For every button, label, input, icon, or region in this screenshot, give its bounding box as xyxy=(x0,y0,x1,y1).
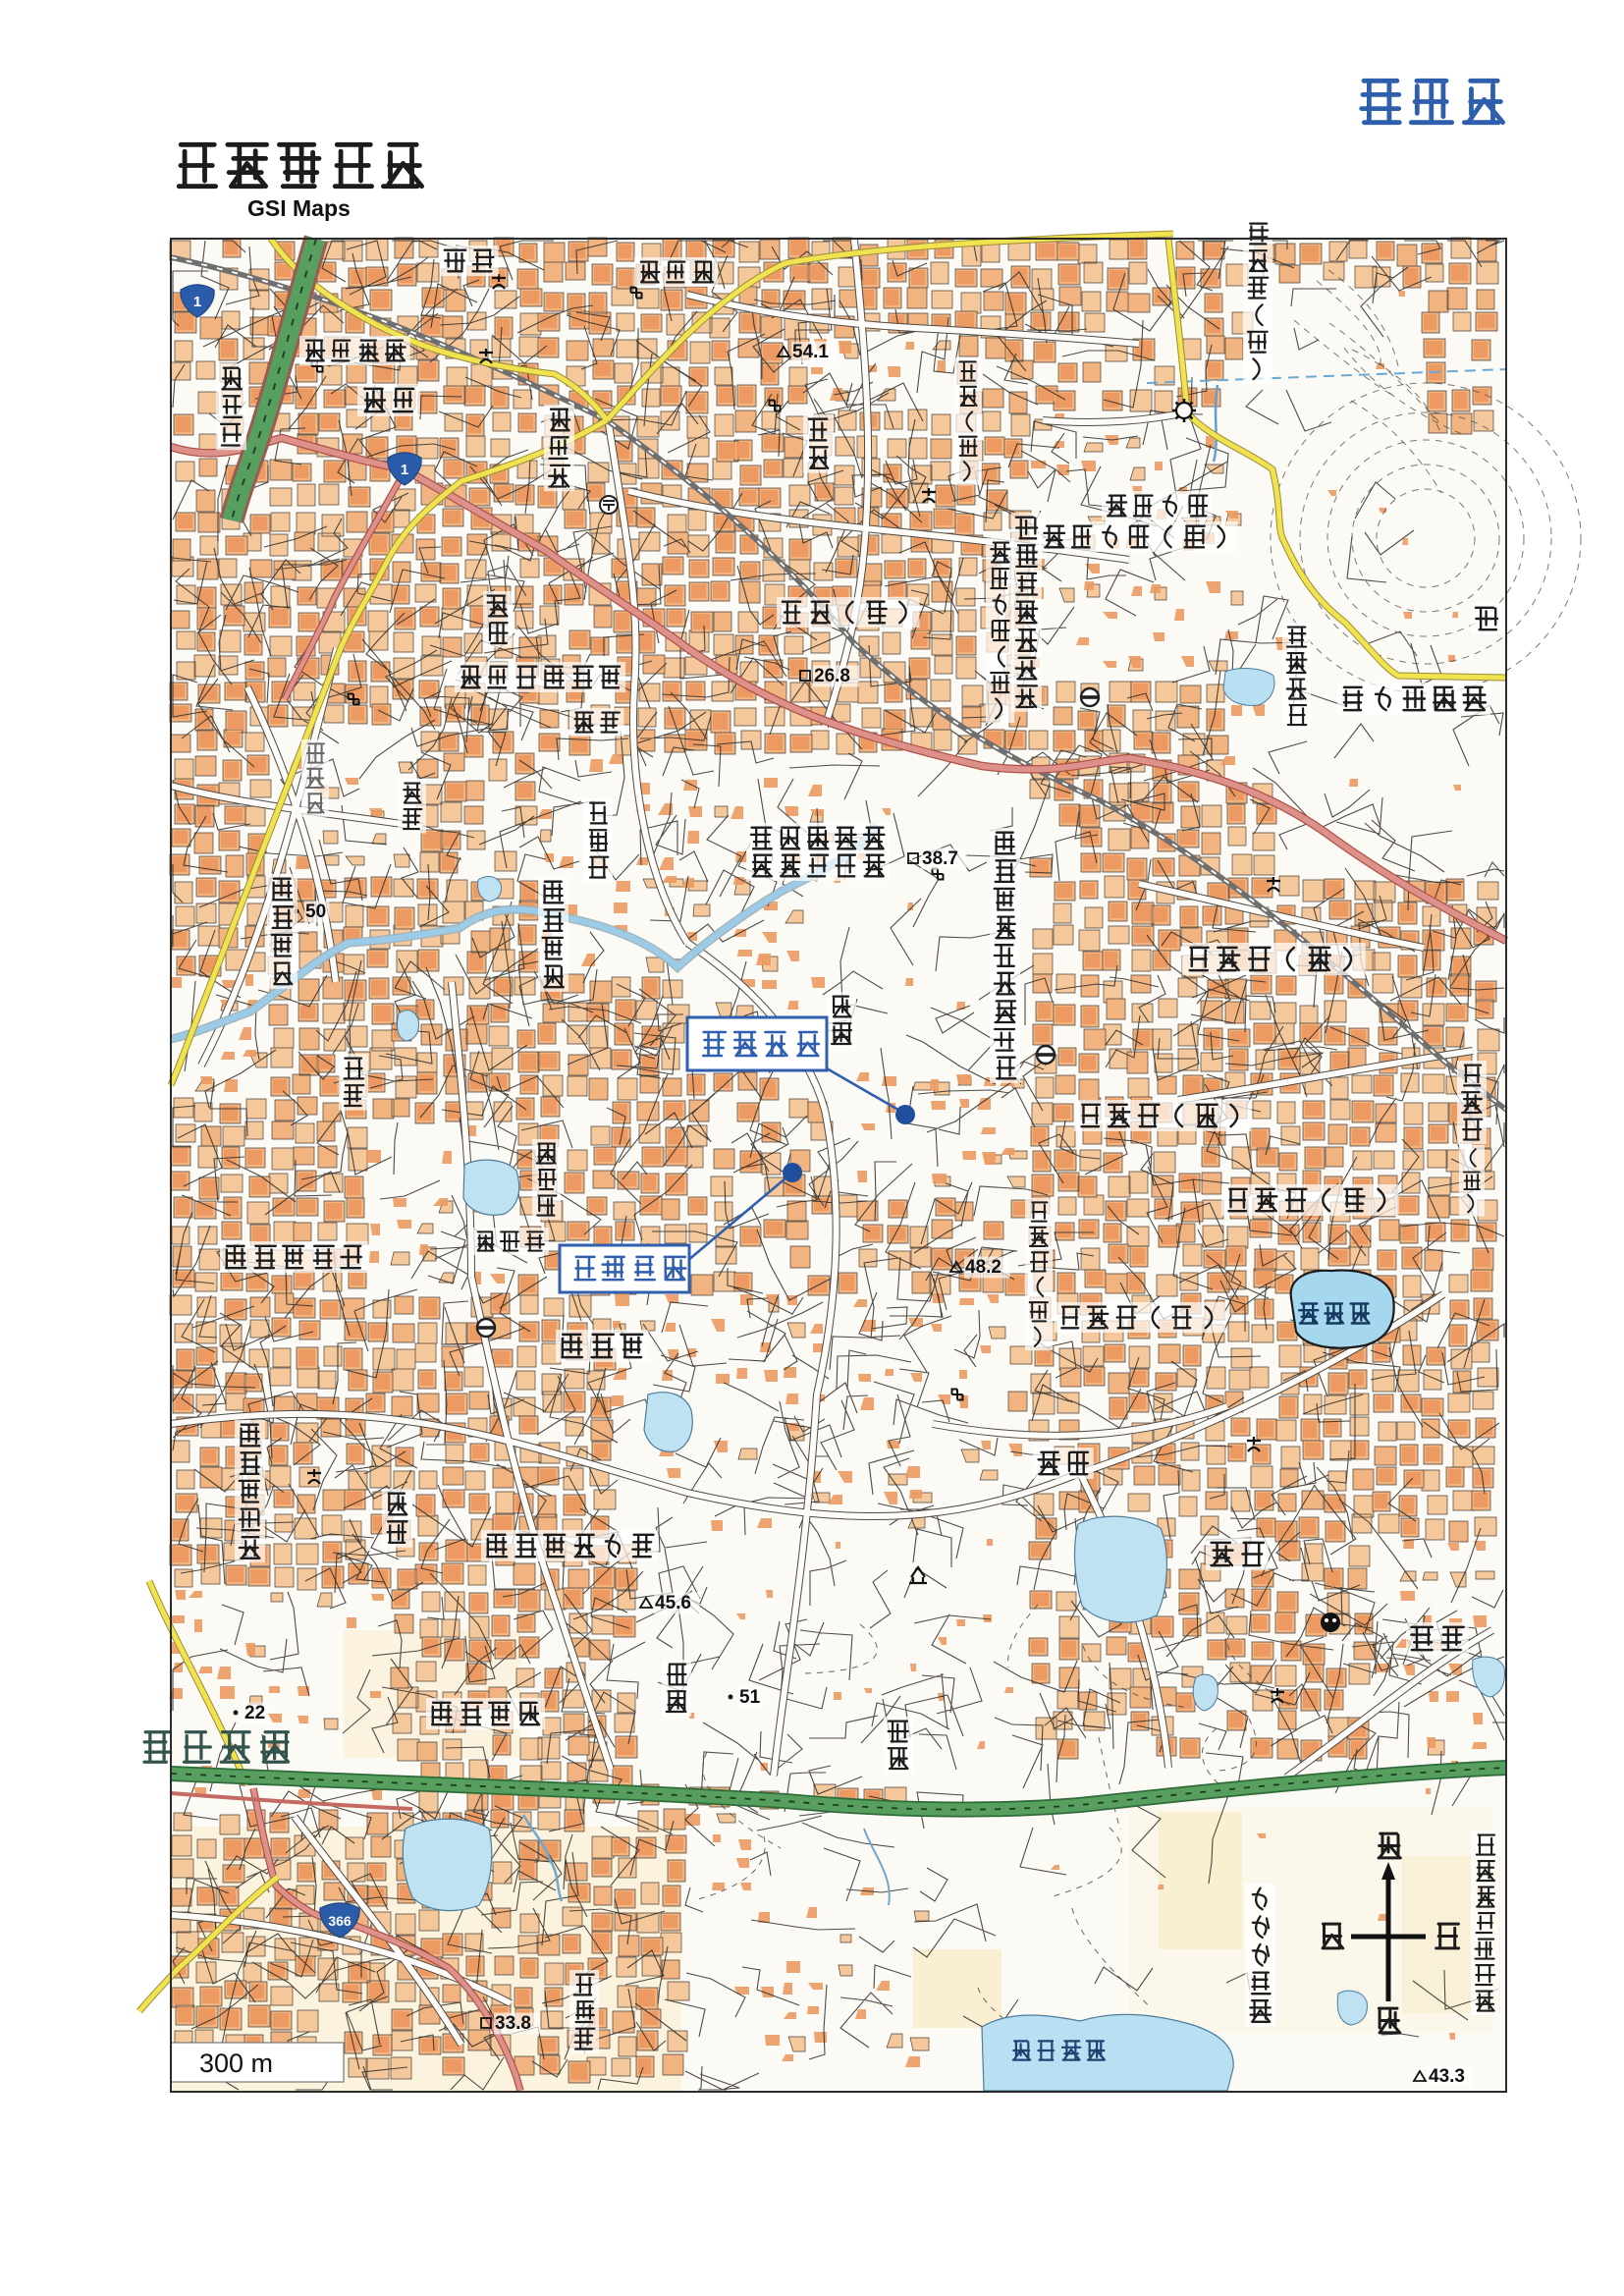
svg-text:1: 1 xyxy=(401,462,408,478)
svg-text:366: 366 xyxy=(328,1913,352,1929)
svg-text:51: 51 xyxy=(739,1687,761,1708)
svg-text:48.2: 48.2 xyxy=(965,1257,1001,1278)
svg-text:38.7: 38.7 xyxy=(922,848,958,869)
svg-text:43.3: 43.3 xyxy=(1429,2066,1465,2087)
svg-text:22: 22 xyxy=(244,1703,265,1723)
svg-text:50: 50 xyxy=(305,902,326,922)
svg-text:33.8: 33.8 xyxy=(495,2013,531,2034)
svg-text:45.6: 45.6 xyxy=(655,1593,691,1613)
svg-text:54.1: 54.1 xyxy=(792,342,829,362)
svg-text:GSI Maps: GSI Maps xyxy=(247,195,351,221)
svg-text:300 m: 300 m xyxy=(199,2049,273,2078)
svg-text:1: 1 xyxy=(193,294,201,310)
svg-text:26.8: 26.8 xyxy=(814,666,850,686)
